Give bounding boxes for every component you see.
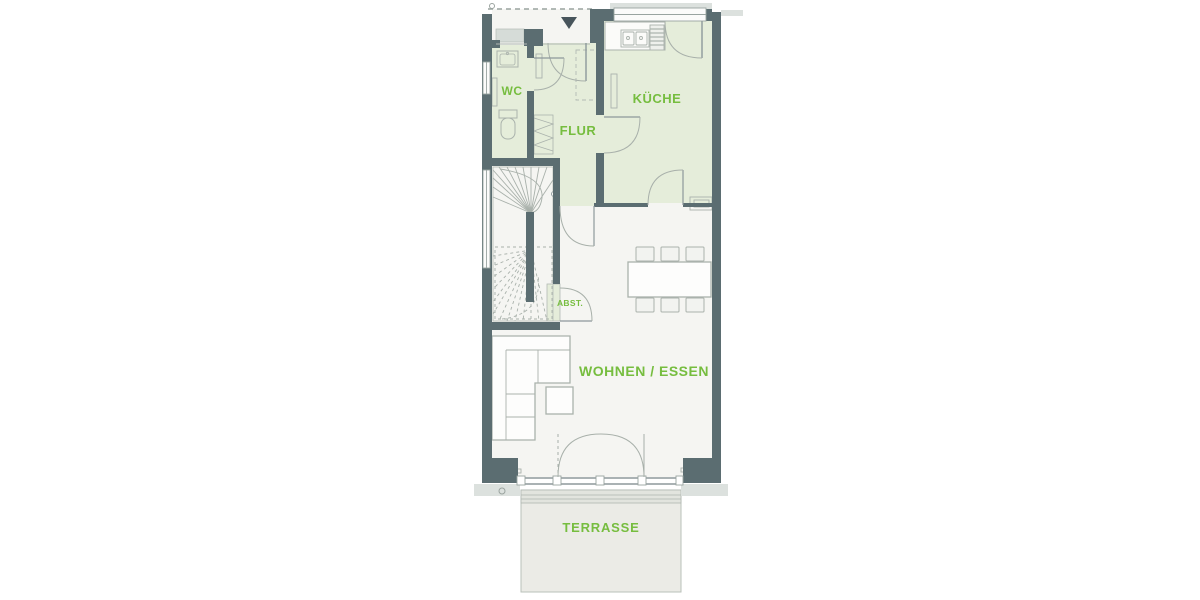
dining-chair (686, 298, 704, 312)
kitchen-window (614, 8, 706, 21)
label-kueche: KÜCHE (633, 91, 682, 106)
dining-chair (661, 298, 679, 312)
kitchen-appliance (650, 25, 664, 50)
kitchen-counter (605, 22, 665, 50)
survey-point-top (490, 4, 495, 9)
label-wohnen-essen: WOHNEN / ESSEN (579, 363, 709, 379)
bottom-right-sill (681, 484, 728, 496)
floorplan-drawing: WC FLUR KÜCHE ABST. WOHNEN / ESSEN TERRA… (0, 0, 1200, 600)
stair-window (483, 170, 490, 268)
entry-mat (496, 29, 524, 42)
terrace-glazing (517, 476, 683, 485)
floorplan-canvas: WC FLUR KÜCHE ABST. WOHNEN / ESSEN TERRA… (0, 0, 1200, 600)
label-wc: WC (502, 84, 523, 98)
bottom-left-sill (474, 484, 520, 496)
dining-chair (661, 247, 679, 261)
dining-set (628, 247, 711, 312)
room-flur-upper (534, 43, 604, 166)
label-abst: ABST. (557, 298, 583, 308)
label-terrasse: TERRASSE (562, 520, 639, 535)
dining-chair (636, 247, 654, 261)
coffee-table (546, 387, 573, 414)
label-flur: FLUR (560, 123, 597, 138)
dining-chair (636, 298, 654, 312)
top-right-sill (721, 10, 743, 16)
terrace-slab (521, 490, 681, 592)
dining-chair (686, 247, 704, 261)
terrace-step-band (521, 490, 681, 503)
dining-table (628, 262, 711, 297)
wc-window (483, 62, 490, 94)
